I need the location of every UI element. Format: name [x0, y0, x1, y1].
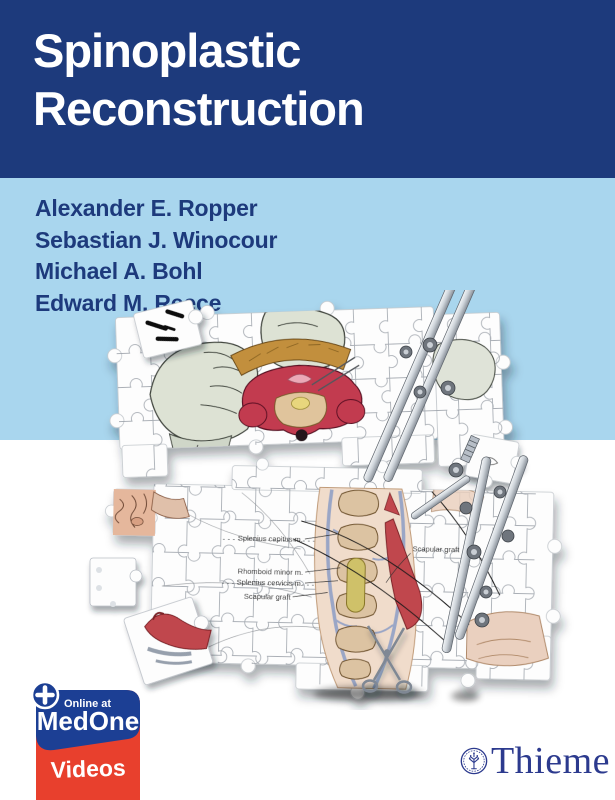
thieme-tree-icon [460, 742, 488, 780]
anatomy-spine [312, 487, 424, 689]
publisher-name: Thieme [491, 741, 610, 781]
cast-shadow [313, 687, 423, 701]
label-splenius-capitus: Splenius capitus m. [238, 534, 303, 544]
author-name: Michael A. Bohl [35, 256, 277, 288]
book-title-line2: Reconstruction [33, 80, 364, 138]
puzzle-illustration: Splenius capitus m. Rhomboid minor m. Sp… [0, 290, 615, 710]
plus-icon [32, 682, 58, 708]
cast-shadow [451, 691, 479, 701]
medone-badge: Online at MedOne Videos [28, 680, 150, 800]
label-rhomboid-minor: Rhomboid minor m. [238, 567, 304, 577]
author-name: Sebastian J. Winocour [35, 225, 277, 257]
label-scapular-graft-left: Scapular graft [244, 592, 292, 602]
book-title: Spinoplastic Reconstruction [33, 22, 364, 138]
medone-product: Videos [50, 754, 126, 783]
label-scapular-graft-right: Scapular graft [413, 544, 461, 554]
label-splenius-cervicis: Splenius cervicis m. [237, 578, 303, 588]
author-name: Alexander E. Ropper [35, 193, 277, 225]
thieme-logo: Thieme [460, 738, 610, 784]
book-cover: Spinoplastic Reconstruction Alexander E.… [0, 0, 615, 800]
medone-brand: MedOne [37, 706, 140, 736]
book-title-line1: Spinoplastic [33, 22, 364, 80]
bone-graft [346, 558, 365, 612]
loose-puzzle-piece-plain [90, 558, 142, 607]
